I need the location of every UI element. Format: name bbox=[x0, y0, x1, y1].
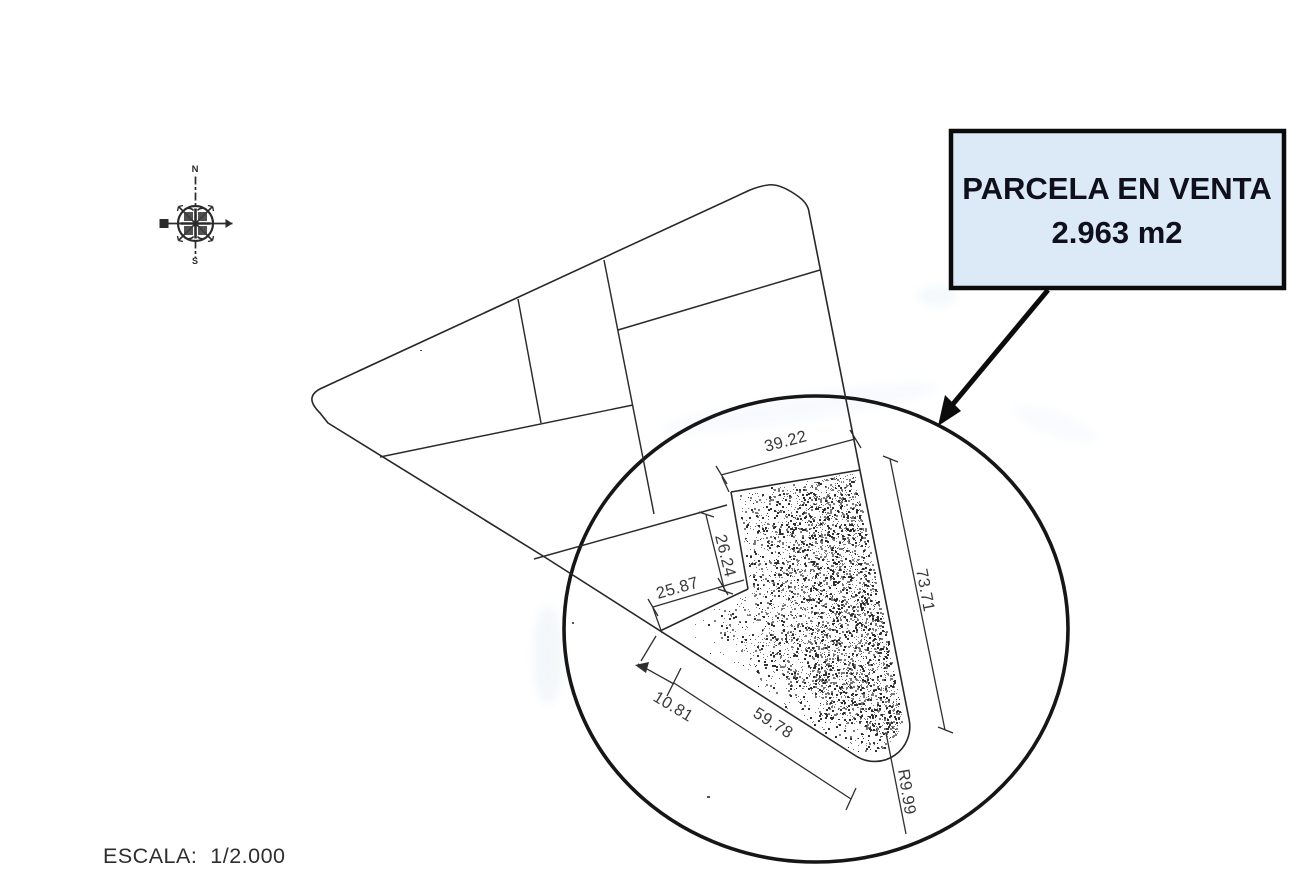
svg-text:N: N bbox=[192, 164, 199, 175]
svg-text:PARCELA EN VENTA: PARCELA EN VENTA bbox=[962, 171, 1271, 206]
svg-text:R9.99: R9.99 bbox=[894, 768, 919, 816]
svg-text:25.87: 25.87 bbox=[654, 574, 701, 603]
svg-text:2.963 m2: 2.963 m2 bbox=[1052, 215, 1183, 250]
svg-text:ESCALA: 1/2.000: ESCALA: 1/2.000 bbox=[103, 844, 286, 868]
svg-text:39.22: 39.22 bbox=[762, 427, 808, 456]
svg-text:S: S bbox=[192, 256, 198, 266]
svg-text:73.71: 73.71 bbox=[912, 567, 938, 613]
svg-text:26.24: 26.24 bbox=[711, 533, 739, 579]
